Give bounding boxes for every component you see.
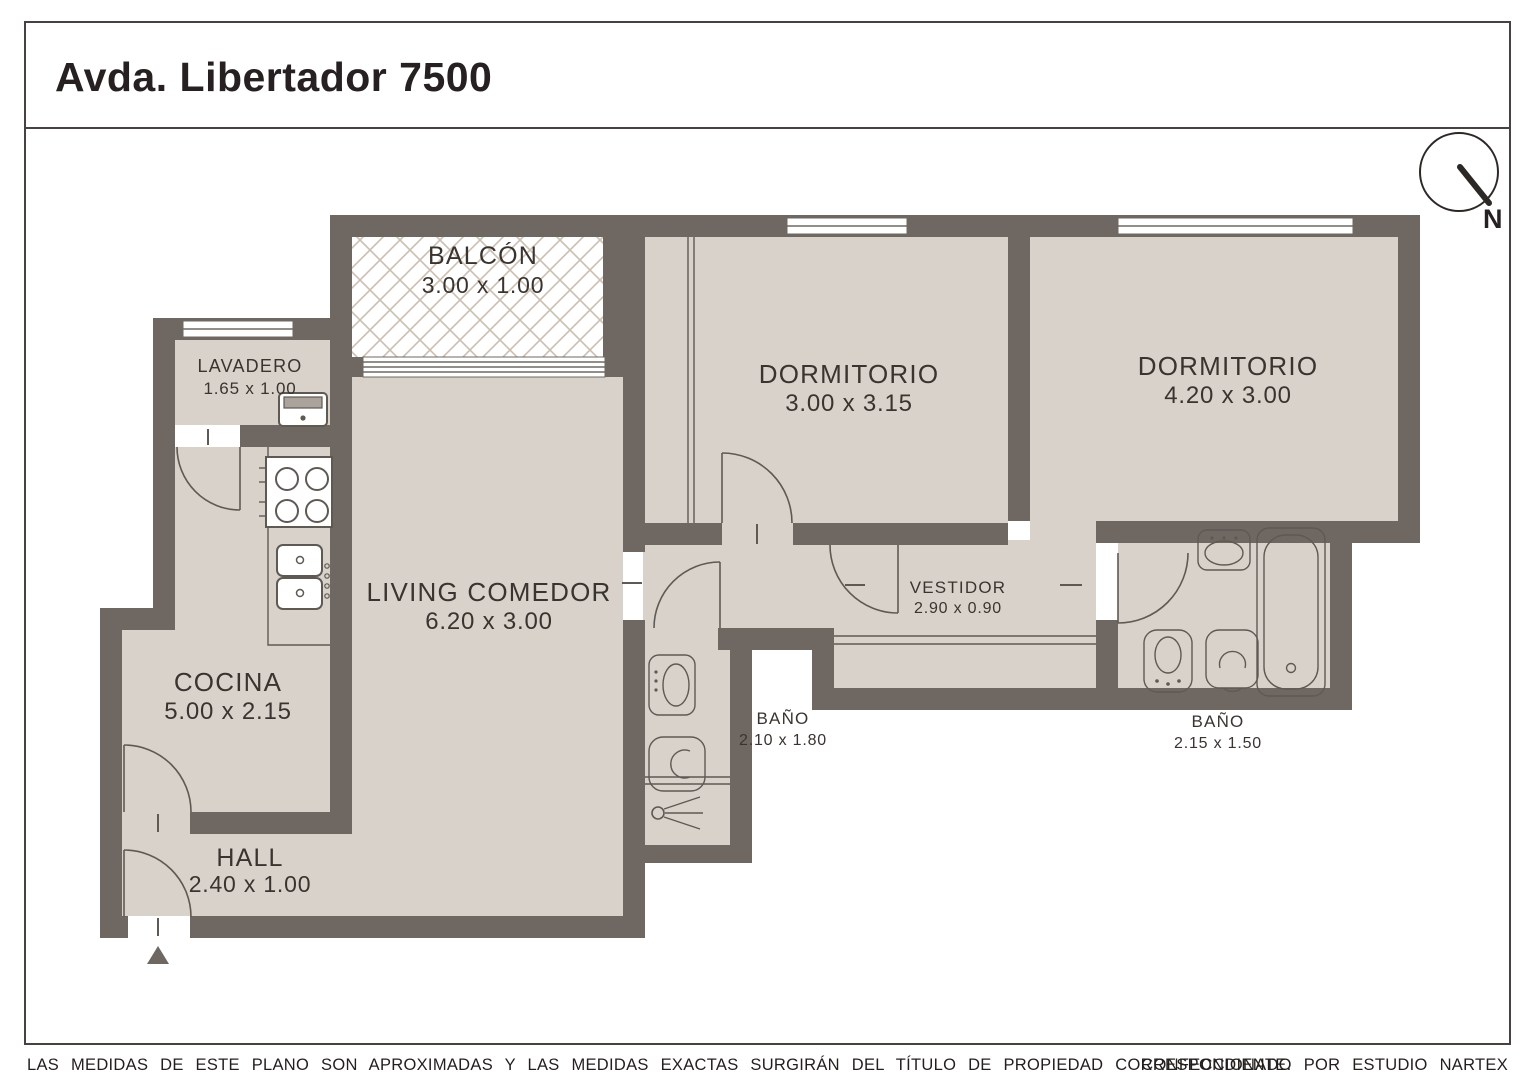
room-bano1-floor — [645, 650, 730, 845]
svg-text:2.10 x 1.80: 2.10 x 1.80 — [739, 732, 827, 749]
room-vestidor-floor — [643, 540, 1096, 628]
footer-credit: CONFECCIONADO POR ESTUDIO NARTEX — [1141, 1056, 1508, 1074]
entry-arrow-icon — [147, 946, 169, 964]
dormitorio2-vestidor-passage — [1030, 521, 1096, 543]
svg-text:3.00 x 3.15: 3.00 x 3.15 — [785, 390, 913, 417]
room-cocina-label: COCINA 5.00 x 2.15 — [164, 667, 292, 725]
svg-text:2.40 x 1.00: 2.40 x 1.00 — [189, 871, 312, 897]
dormitorio1-window-icon — [787, 218, 907, 234]
footer: LAS MEDIDAS DE ESTE PLANO SON APROXIMADA… — [27, 1055, 1508, 1074]
compass-icon: N — [1420, 133, 1503, 234]
lavadero-window-icon — [183, 321, 293, 337]
floor-plan-page: Avda. Libertador 7500 N — [0, 0, 1528, 1080]
svg-text:6.20 x 3.00: 6.20 x 3.00 — [425, 608, 553, 635]
svg-text:BAÑO: BAÑO — [757, 709, 810, 728]
dormitorio2-window-icon — [1118, 218, 1353, 234]
svg-text:BALCÓN: BALCÓN — [428, 241, 538, 270]
cocina-hall-passage — [122, 812, 190, 834]
vestidor-closet-floor — [834, 628, 1096, 688]
svg-text:DORMITORIO: DORMITORIO — [759, 359, 940, 389]
footer-disclaimer: LAS MEDIDAS DE ESTE PLANO SON APROXIMADA… — [27, 1055, 1292, 1074]
room-dormitorio2-label: DORMITORIO 4.20 x 3.00 — [1138, 351, 1319, 409]
svg-text:LAVADERO: LAVADERO — [198, 356, 303, 376]
svg-text:LIVING COMEDOR: LIVING COMEDOR — [366, 577, 611, 607]
balcony-sliding-door-icon — [363, 357, 605, 377]
svg-text:BAÑO: BAÑO — [1192, 712, 1245, 731]
svg-text:4.20 x 3.00: 4.20 x 3.00 — [1164, 382, 1292, 409]
room-dormitorio1-label: DORMITORIO 3.00 x 3.15 — [759, 359, 940, 417]
svg-text:DORMITORIO: DORMITORIO — [1138, 351, 1319, 381]
svg-text:COCINA: COCINA — [174, 667, 282, 697]
svg-text:2.90 x 0.90: 2.90 x 0.90 — [914, 600, 1002, 617]
room-living-floor — [352, 374, 623, 916]
floor-plan-drawing: Avda. Libertador 7500 N — [0, 0, 1528, 1080]
svg-text:HALL: HALL — [216, 844, 283, 872]
bano1-doorway — [643, 628, 718, 650]
svg-text:2.15 x 1.50: 2.15 x 1.50 — [1174, 735, 1262, 752]
svg-text:3.00 x 1.00: 3.00 x 1.00 — [422, 272, 545, 298]
svg-text:1.65 x 1.00: 1.65 x 1.00 — [204, 379, 297, 398]
page-title: Avda. Libertador 7500 — [55, 54, 492, 100]
stove-icon — [259, 457, 332, 527]
room-bano1-label: BAÑO 2.10 x 1.80 — [739, 709, 827, 749]
svg-text:5.00 x 2.15: 5.00 x 2.15 — [164, 698, 292, 725]
compass-north-label: N — [1483, 204, 1503, 234]
room-balcon-label: BALCÓN 3.00 x 1.00 — [422, 241, 545, 298]
svg-text:VESTIDOR: VESTIDOR — [910, 578, 1007, 597]
room-bano2-label: BAÑO 2.15 x 1.50 — [1174, 712, 1262, 752]
